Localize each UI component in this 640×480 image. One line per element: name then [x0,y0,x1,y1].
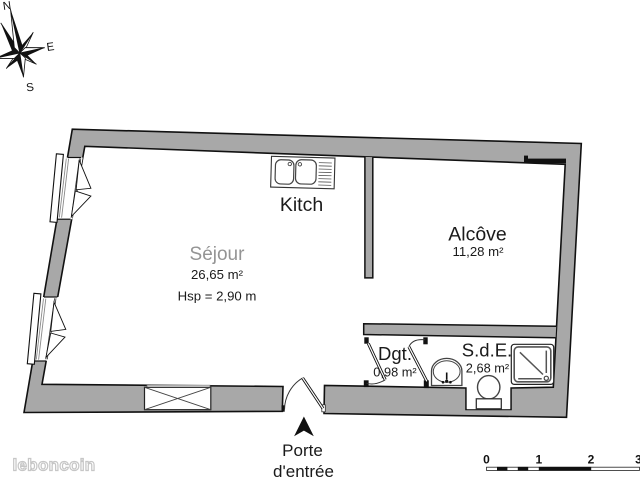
svg-text:11,28 m²: 11,28 m² [452,244,504,259]
svg-text:0: 0 [483,453,490,467]
svg-text:S.d.E.: S.d.E. [462,340,512,361]
svg-text:Hsp = 2,90 m: Hsp = 2,90 m [178,289,257,304]
svg-text:Séjour: Séjour [190,244,246,265]
svg-text:2,68 m²: 2,68 m² [466,361,510,376]
svg-text:2: 2 [588,453,595,467]
svg-text:N: N [2,0,12,13]
svg-text:3: 3 [635,453,640,467]
svg-text:26,65 m²: 26,65 m² [191,267,244,282]
svg-text:Kitch: Kitch [280,194,323,216]
svg-text:d'entrée: d'entrée [273,462,334,480]
svg-text:Porte: Porte [282,441,323,460]
svg-text:0,98 m²: 0,98 m² [373,365,417,380]
svg-text:1: 1 [535,453,542,467]
svg-text:Dgt.: Dgt. [378,343,412,364]
svg-text:Alcôve: Alcôve [448,224,507,246]
svg-text:leboncoin: leboncoin [13,455,96,474]
